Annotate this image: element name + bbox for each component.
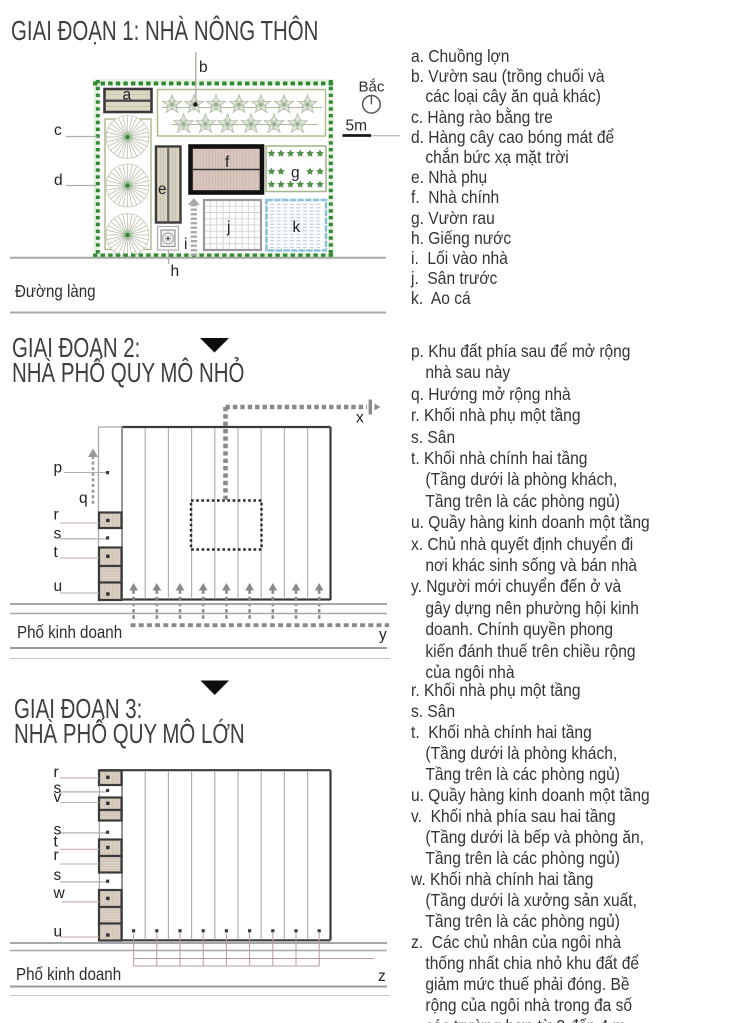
svg-text:a: a xyxy=(123,87,132,104)
svg-text:i: i xyxy=(184,236,187,253)
svg-text:f: f xyxy=(225,154,230,171)
svg-text:5m: 5m xyxy=(346,118,368,135)
svg-text:j: j xyxy=(226,219,230,236)
svg-text:r: r xyxy=(54,764,59,781)
svg-text:u: u xyxy=(54,578,63,595)
svg-text:s: s xyxy=(54,867,62,884)
svg-text:r: r xyxy=(54,507,59,524)
svg-text:g: g xyxy=(291,165,300,182)
svg-text:v: v xyxy=(54,789,62,806)
svg-text:r: r xyxy=(54,847,59,864)
svg-text:z: z xyxy=(378,968,386,985)
svg-text:k: k xyxy=(293,219,301,236)
svg-text:b: b xyxy=(199,59,208,76)
svg-text:d: d xyxy=(54,172,63,189)
svg-text:w: w xyxy=(53,885,66,902)
svg-text:t: t xyxy=(54,544,59,561)
svg-text:Phố kinh doanh: Phố kinh doanh xyxy=(17,623,122,642)
svg-text:h: h xyxy=(171,263,180,280)
svg-text:e: e xyxy=(158,181,167,198)
svg-text:p: p xyxy=(54,460,63,477)
svg-text:Đường làng: Đường làng xyxy=(15,282,96,301)
svg-text:Phố kinh doanh: Phố kinh doanh xyxy=(16,965,121,984)
svg-text:c: c xyxy=(54,122,62,139)
svg-text:s: s xyxy=(54,526,62,543)
svg-text:q: q xyxy=(79,490,88,507)
svg-text:u: u xyxy=(54,924,63,941)
svg-text:Bắc: Bắc xyxy=(359,79,385,96)
svg-text:x: x xyxy=(356,410,364,427)
svg-text:y: y xyxy=(379,627,387,644)
